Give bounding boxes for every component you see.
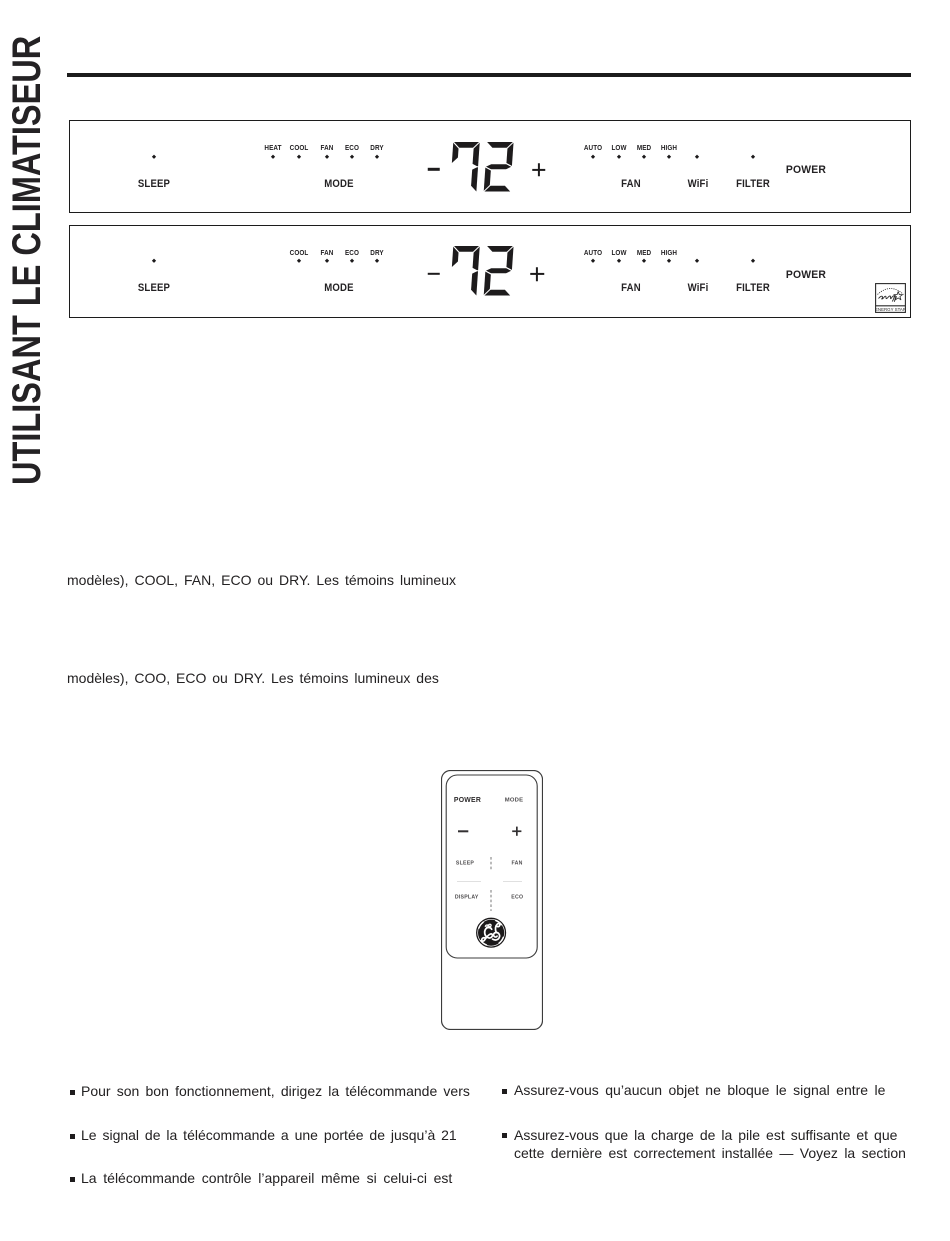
svg-text:SLEEP: SLEEP (455, 861, 474, 867)
svg-text:ENERGY STAR: ENERGY STAR (875, 306, 906, 311)
svg-text:DISPLAY: DISPLAY (454, 895, 478, 901)
svg-text:ECO: ECO (511, 895, 523, 901)
svg-text:POWER: POWER (453, 797, 480, 804)
svg-text:FAN: FAN (511, 861, 522, 867)
svg-text:MODE: MODE (504, 798, 522, 804)
